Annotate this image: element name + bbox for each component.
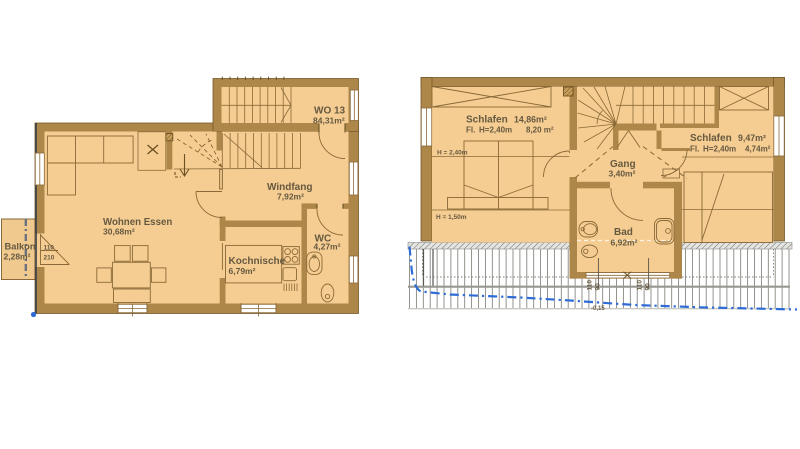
- svg-text:H=2,40m: H=2,40m: [703, 145, 736, 154]
- svg-text:H = 1,50m: H = 1,50m: [436, 214, 467, 221]
- svg-text:110: 110: [44, 245, 55, 252]
- svg-text:9,47m²: 9,47m²: [738, 133, 766, 143]
- svg-text:Balkon: Balkon: [5, 242, 36, 252]
- svg-text:H=2,40m: H=2,40m: [479, 126, 512, 135]
- svg-text:14,86m²: 14,86m²: [514, 115, 547, 125]
- svg-text:110: 110: [637, 280, 644, 291]
- svg-text:Bad: Bad: [614, 227, 633, 238]
- svg-text:-0,15: -0,15: [591, 306, 605, 312]
- svg-text:110: 110: [587, 280, 594, 291]
- svg-text:Schlafen: Schlafen: [466, 115, 508, 126]
- svg-text:6,79m²: 6,79m²: [229, 266, 256, 276]
- svg-text:Fl.: Fl.: [690, 145, 699, 154]
- svg-text:H = 2,40m: H = 2,40m: [437, 150, 468, 157]
- svg-text:2,28m²: 2,28m²: [4, 252, 31, 262]
- svg-text:Schlafen: Schlafen: [690, 133, 732, 144]
- svg-text:90: 90: [595, 283, 602, 291]
- svg-text:7,92m²: 7,92m²: [277, 192, 304, 202]
- svg-text:84,31m²: 84,31m²: [313, 116, 345, 126]
- svg-text:90: 90: [645, 283, 652, 291]
- svg-text:6,92m²: 6,92m²: [611, 238, 638, 248]
- svg-text:4,27m²: 4,27m²: [314, 242, 341, 252]
- svg-text:30,68m²: 30,68m²: [103, 227, 135, 237]
- svg-text:3,40m²: 3,40m²: [609, 169, 636, 179]
- svg-text:8,20 m²: 8,20 m²: [526, 126, 554, 135]
- svg-text:4,74m²: 4,74m²: [745, 145, 771, 154]
- svg-text:210: 210: [44, 255, 55, 262]
- svg-text:Fl.: Fl.: [466, 126, 475, 135]
